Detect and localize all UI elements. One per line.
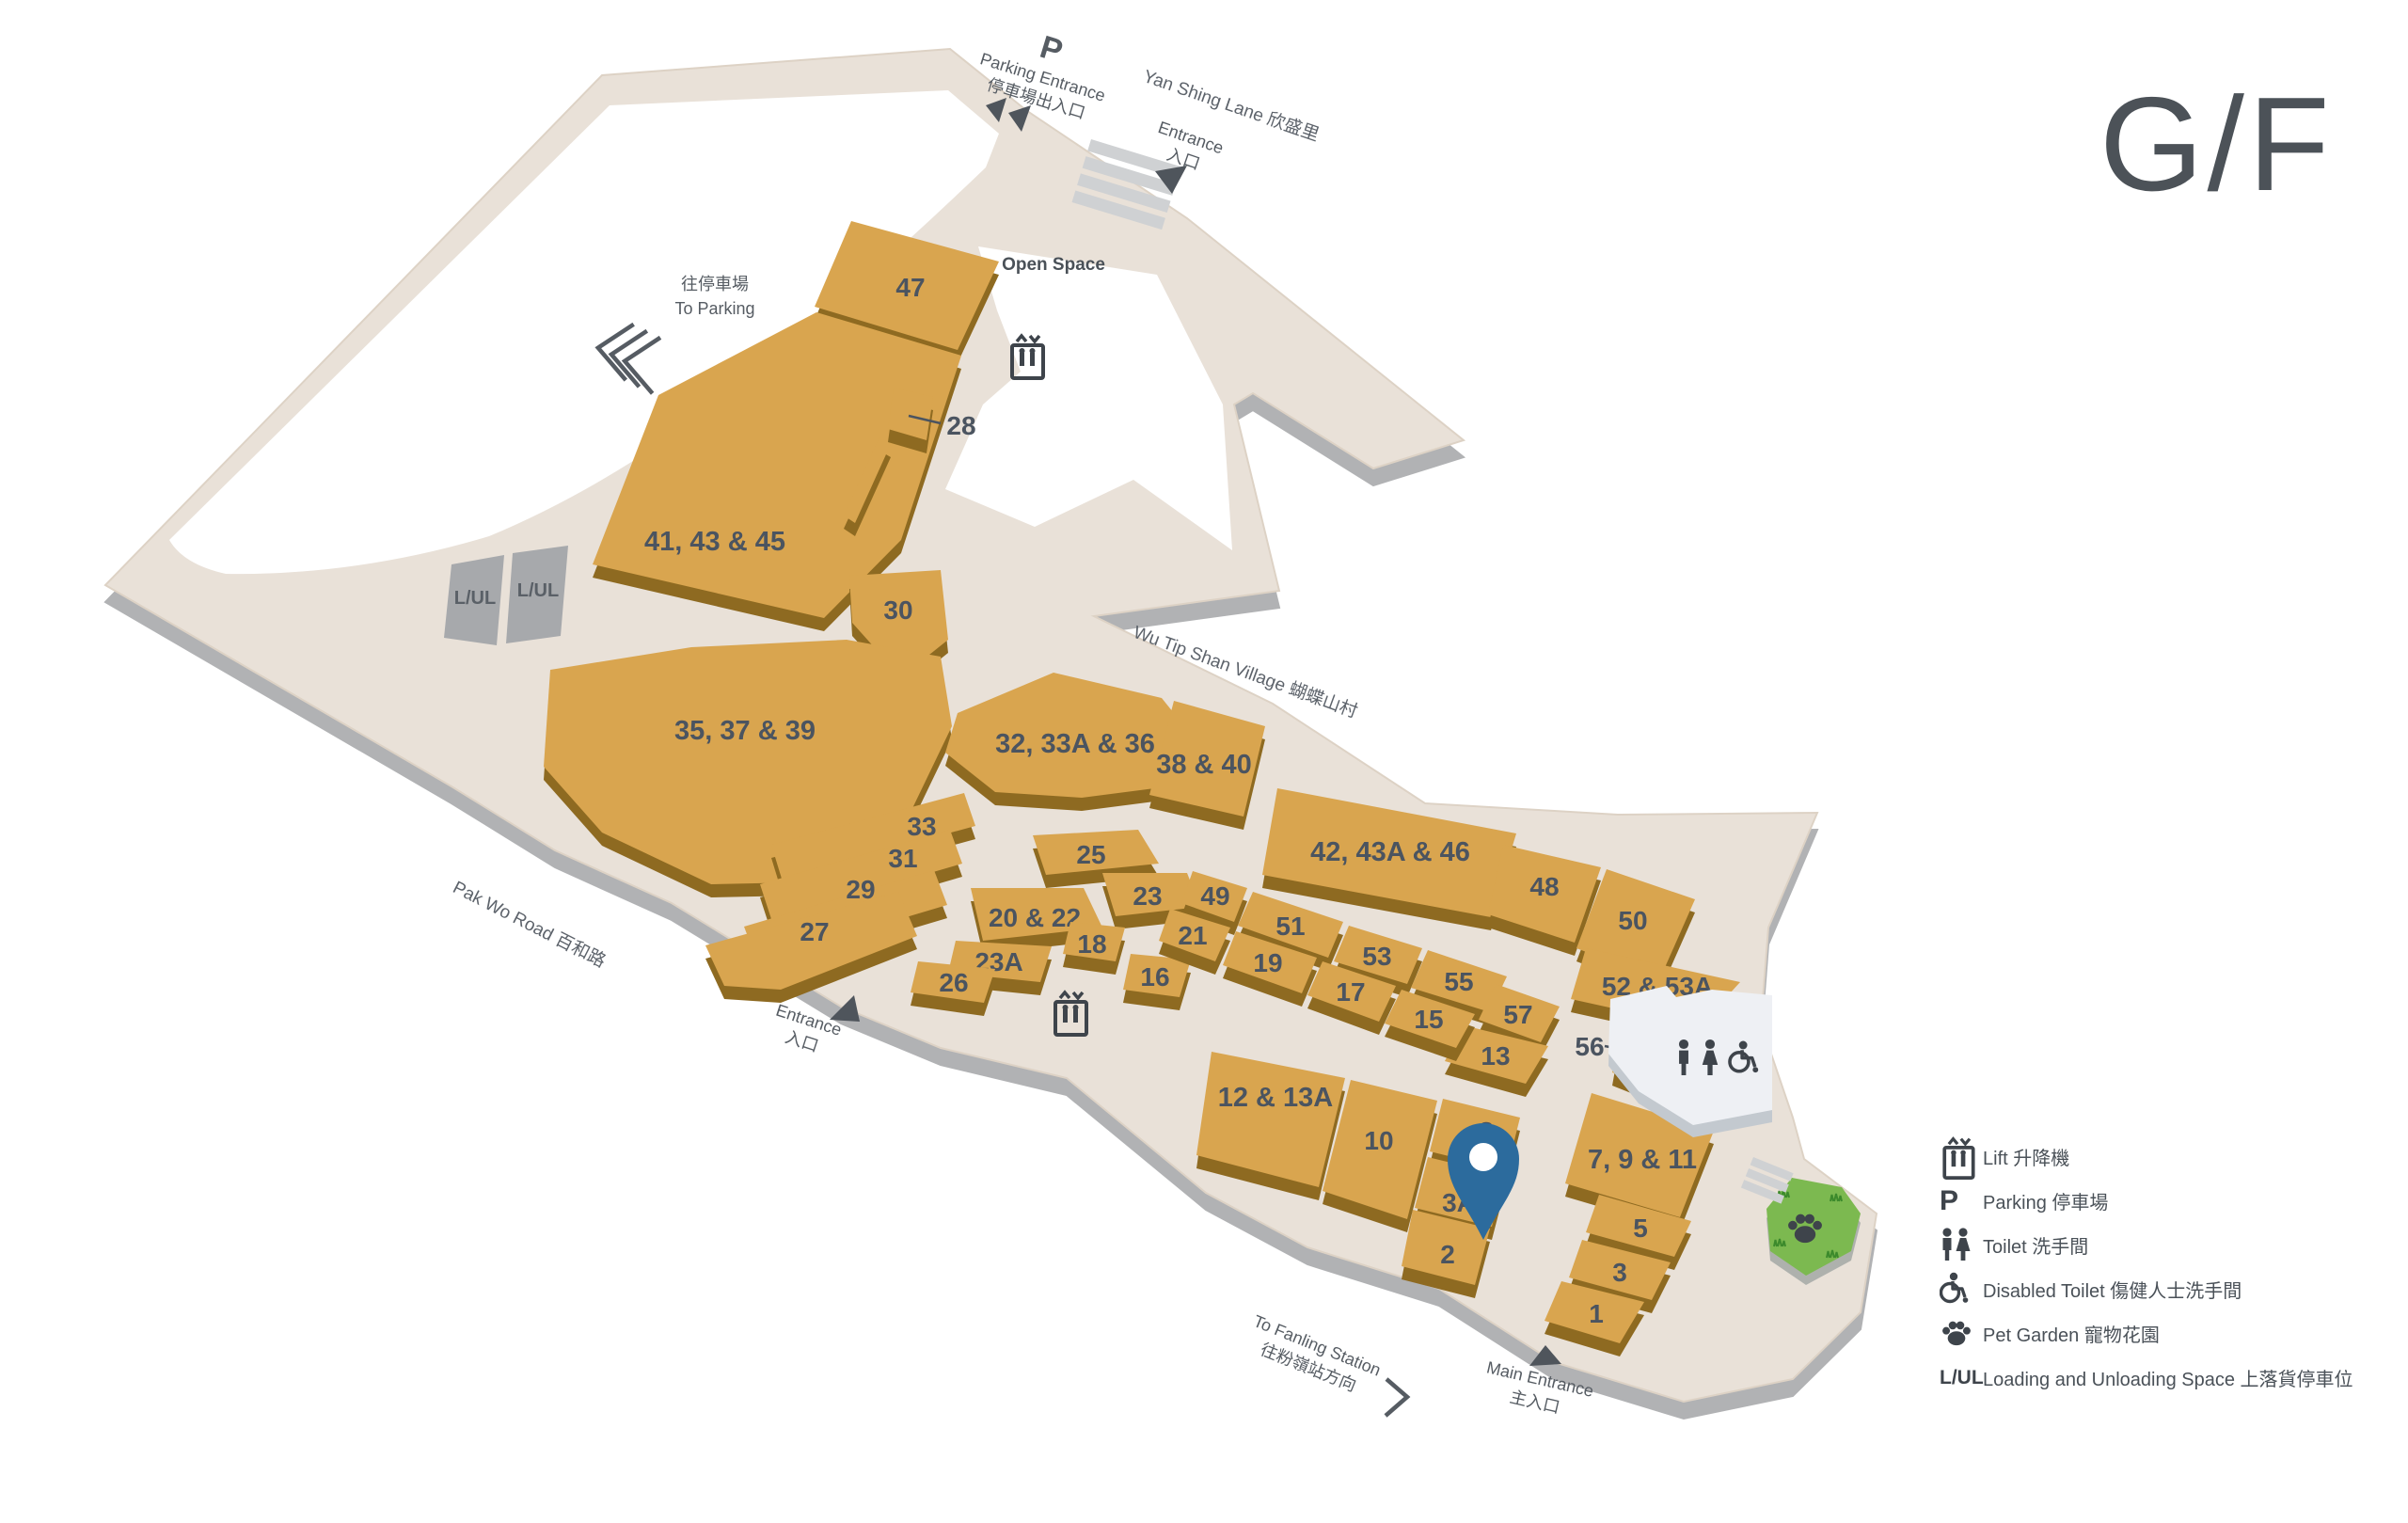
disabled-toilet-icon	[1941, 1272, 1969, 1302]
shop-35-37-39-label: 35, 37 & 39	[674, 716, 816, 746]
lul-pad-label: L/UL	[454, 588, 496, 609]
toilet-icon	[1942, 1228, 1951, 1261]
shop-10-label: 10	[1364, 1126, 1393, 1155]
legend-item-disabled-toilet: Disabled Toilet 傷健人士洗手間	[1940, 1267, 2400, 1311]
shop-50-label: 50	[1618, 906, 1647, 935]
pak-wo-road-label: Pak Wo Road 百和路	[450, 877, 610, 972]
svg-text:To Parking: To Parking	[674, 299, 754, 318]
shop-51-label: 51	[1275, 912, 1305, 941]
floor-title: G/F	[2099, 70, 2334, 219]
entrance-label-left: Entrance 入口	[767, 1001, 844, 1061]
shop-56-label: 56	[1575, 1032, 1604, 1061]
shop-25-label: 25	[1076, 840, 1105, 869]
shop-32-33A-36-label: 32, 33A & 36	[995, 729, 1155, 759]
shop-41-43-45-label: 41, 43 & 45	[644, 527, 785, 557]
shop-13-label: 13	[1481, 1041, 1510, 1071]
shop-21-label: 21	[1178, 921, 1207, 950]
to-fanling-label: To Fanling Station 往粉嶺站方向	[1242, 1311, 1383, 1402]
parking-p-icon: P	[1036, 29, 1067, 70]
shop-48-label: 48	[1529, 872, 1559, 901]
legend: Lift 升降機 P Parking 停車場 Toilet 洗手間 Disabl…	[1940, 1134, 2400, 1400]
shop-49-label: 49	[1200, 881, 1229, 911]
shop-30-label: 30	[883, 595, 912, 625]
shop-27-label: 27	[800, 917, 829, 946]
legend-item-parking: P Parking 停車場	[1940, 1179, 2400, 1223]
shop-19-label: 19	[1253, 948, 1282, 977]
legend-item-lift: Lift 升降機	[1940, 1134, 2400, 1179]
shop-55-label: 55	[1444, 967, 1473, 996]
shop-57-label: 57	[1503, 1000, 1532, 1029]
svg-text:往停車場: 往停車場	[681, 275, 749, 293]
legend-item-pet-garden: Pet Garden 寵物花園	[1940, 1311, 2400, 1356]
shop-2-label: 2	[1440, 1240, 1455, 1269]
legend-item-toilet: Toilet 洗手間	[1940, 1223, 2400, 1267]
svg-text:Pak Wo Road 百和路: Pak Wo Road 百和路	[450, 877, 610, 972]
shop-47-label: 47	[895, 273, 925, 302]
shop-5-label: 5	[1633, 1214, 1648, 1243]
floor-plan-page: L/UL L/UL 47 41, 43 & 45 28 30 35, 37 & …	[0, 0, 2408, 1523]
shop-26-label: 26	[939, 968, 968, 997]
shop-23-label: 23	[1133, 881, 1162, 911]
legend-item-loading: L/UL Loading and Unloading Space 上落貨停車位	[1940, 1356, 2400, 1400]
shop-12-13A-label: 12 & 13A	[1218, 1083, 1334, 1113]
shop-17-label: 17	[1336, 977, 1365, 1007]
shop-15-label: 15	[1414, 1005, 1443, 1034]
shop-28-label: 28	[946, 411, 975, 440]
to-fanling-chevron-icon	[1386, 1379, 1407, 1416]
parking-icon: P	[1940, 1187, 1958, 1215]
open-space-label: Open Space	[1002, 255, 1105, 275]
lul-pad-label: L/UL	[517, 580, 559, 601]
lift-icon	[1944, 1138, 1972, 1178]
shop-1-label: 1	[1589, 1299, 1604, 1328]
shop-20-22-label: 20 & 22	[989, 903, 1081, 932]
shop-18-label: 18	[1077, 929, 1106, 959]
loading-unloading-icon: L/UL	[1940, 1368, 1984, 1388]
shop-16[interactable]: 16	[1123, 954, 1191, 997]
shop-31-label: 31	[888, 844, 917, 873]
shop-42-43A-46-label: 42, 43A & 46	[1310, 837, 1470, 867]
shop-3-label: 3	[1612, 1258, 1627, 1287]
shop-7-9-11-label: 7, 9 & 11	[1588, 1145, 1697, 1175]
shop-53-label: 53	[1362, 942, 1391, 971]
pet-garden-icon	[1942, 1321, 1971, 1344]
shop-16-label: 16	[1140, 962, 1169, 992]
shop-38-40-label: 38 & 40	[1156, 750, 1252, 780]
